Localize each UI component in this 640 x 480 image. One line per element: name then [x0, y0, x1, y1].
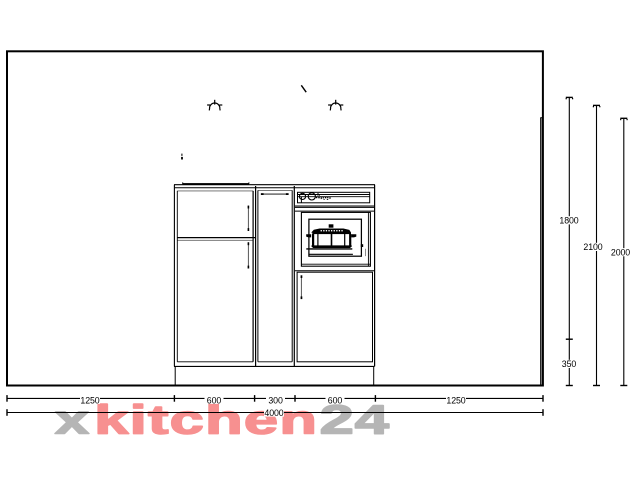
svg-text:1800: 1800 [559, 216, 578, 226]
svg-text:600: 600 [207, 395, 222, 405]
svg-text:2000: 2000 [611, 248, 630, 258]
svg-text:1250: 1250 [80, 395, 99, 405]
svg-text:4000: 4000 [264, 408, 283, 418]
svg-text:1250: 1250 [446, 395, 465, 405]
svg-text:350: 350 [562, 359, 577, 369]
svg-text:600: 600 [328, 395, 343, 405]
svg-text:300: 300 [268, 395, 283, 405]
svg-text:2100: 2100 [583, 242, 602, 252]
